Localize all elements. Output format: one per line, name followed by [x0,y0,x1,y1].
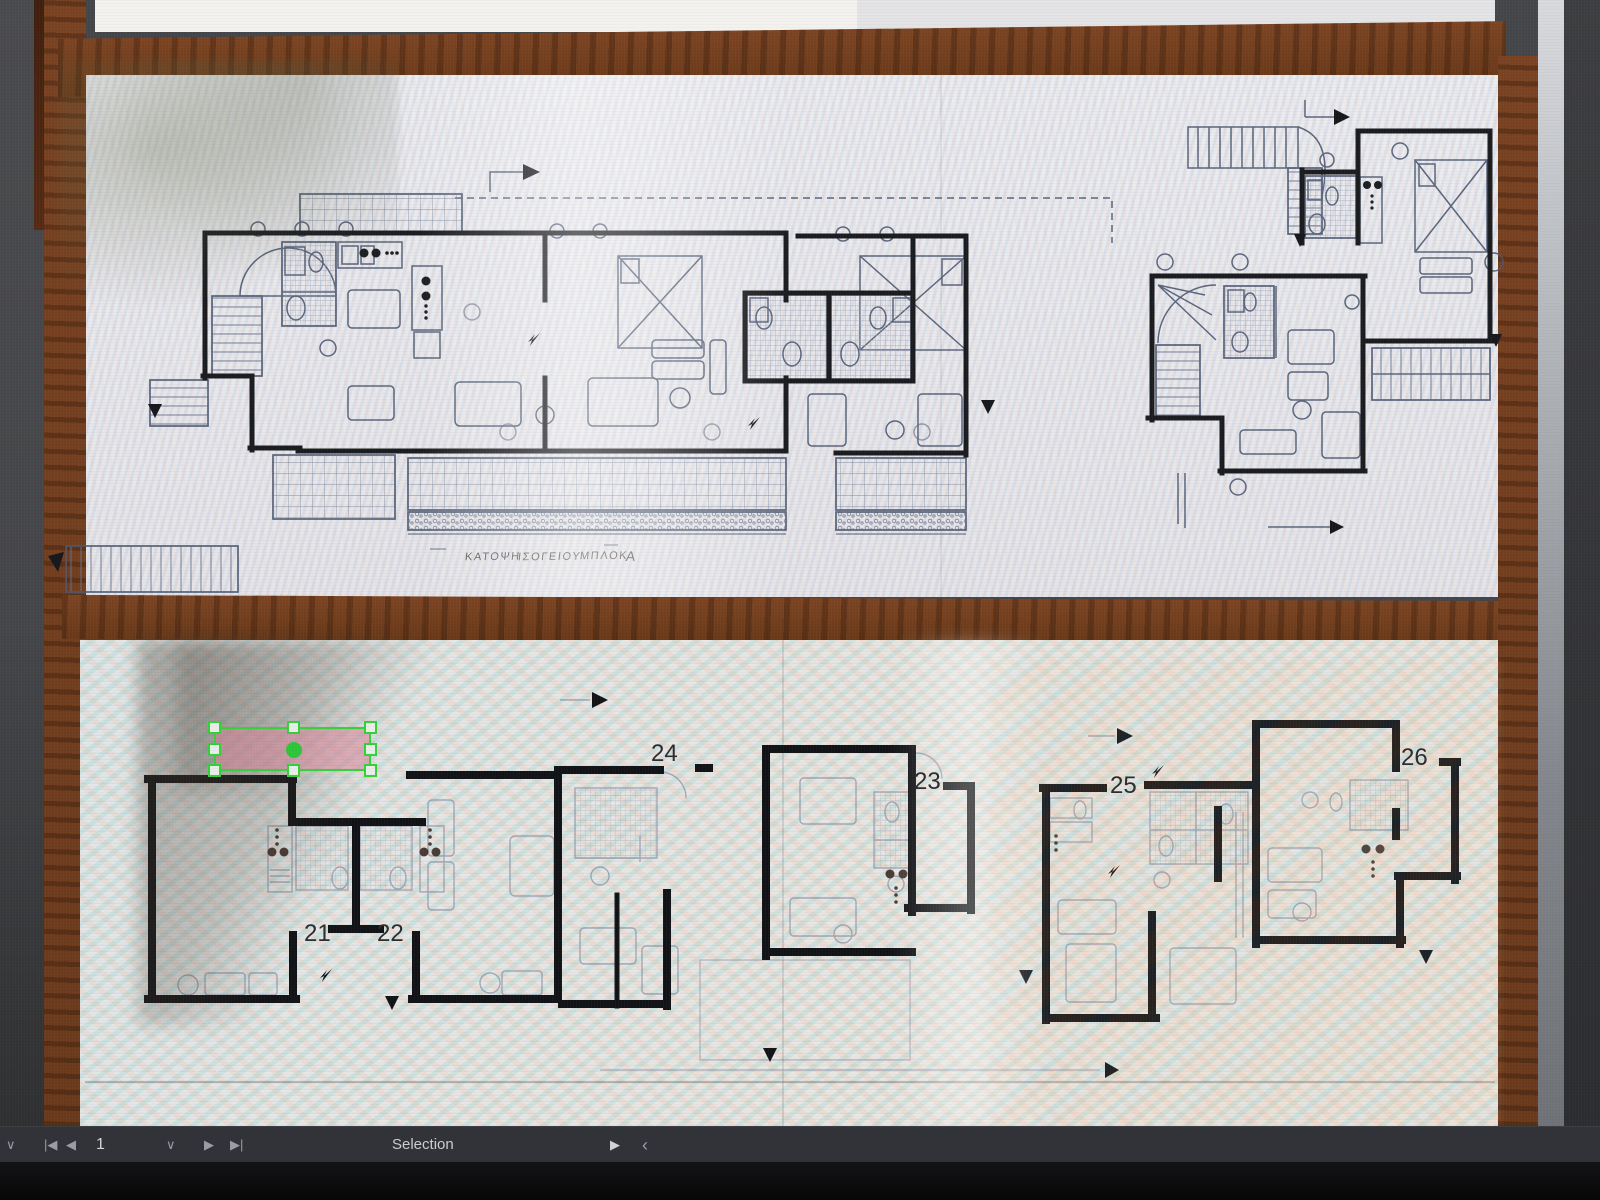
mode-label: Selection [392,1127,454,1163]
bottom-toolbar: ∨ |◀ ◀ 1 ∨ ▶ ▶| Selection ▶ ‹ [0,1126,1600,1163]
unit-label-26: 26 [1401,744,1428,772]
window-reflection [58,60,398,340]
last-page-button[interactable]: ▶| [230,1127,243,1163]
wood-strip-right [1498,56,1538,1126]
moire-rainbow-patch [990,660,1502,1126]
page-number-field[interactable]: 1 [96,1127,105,1163]
selection-handle-top-middle[interactable] [287,721,300,734]
previous-page-button[interactable]: ◀ [66,1127,76,1163]
selection-handle-middle-right[interactable] [364,743,377,756]
paper-crease-bottom-sheet [782,640,784,1126]
unit-label-21: 21 [304,920,331,948]
selection-handle-bottom-left[interactable] [208,764,221,777]
selection-handle-bottom-right[interactable] [364,764,377,777]
selection-handle-bottom-middle[interactable] [287,764,300,777]
selection-center-point[interactable] [286,742,302,758]
bottom-black-band [0,1162,1600,1200]
paper-scrap-top-left [95,0,857,32]
paper-crease-top-sheet [940,75,942,597]
screen-bezel-reflection [1538,0,1564,1126]
photo-canvas[interactable]: ΚΑΤΟΨΗ ΙΣΟΓΕΙΟΥ ΜΠΛΟΚ Α 21 22 23 24 25 2… [0,0,1600,1126]
play-next-icon[interactable]: ▶ [610,1127,620,1163]
wood-strip-middle [62,595,1506,645]
light-reflection-band [420,75,790,597]
unit-label-22: 22 [377,920,404,948]
page-dropdown-chevron-icon[interactable]: ∨ [166,1127,176,1163]
selection-handle-top-left[interactable] [208,721,221,734]
app-window: ΚΑΤΟΨΗ ΙΣΟΓΕΙΟΥ ΜΠΛΟΚ Α 21 22 23 24 25 2… [0,0,1600,1200]
selection-handle-top-right[interactable] [364,721,377,734]
unit-label-25: 25 [1110,772,1137,800]
next-page-button[interactable]: ▶ [204,1127,214,1163]
desk-shadow-right [1564,0,1600,1126]
unit-label-23: 23 [914,768,941,796]
selection-handle-middle-left[interactable] [208,743,221,756]
back-chevron-icon[interactable]: ‹ [642,1127,648,1163]
selection-box[interactable] [214,727,371,771]
chevron-down-icon[interactable]: ∨ [6,1127,16,1163]
unit-label-24: 24 [651,740,678,768]
first-page-button[interactable]: |◀ [44,1127,57,1163]
